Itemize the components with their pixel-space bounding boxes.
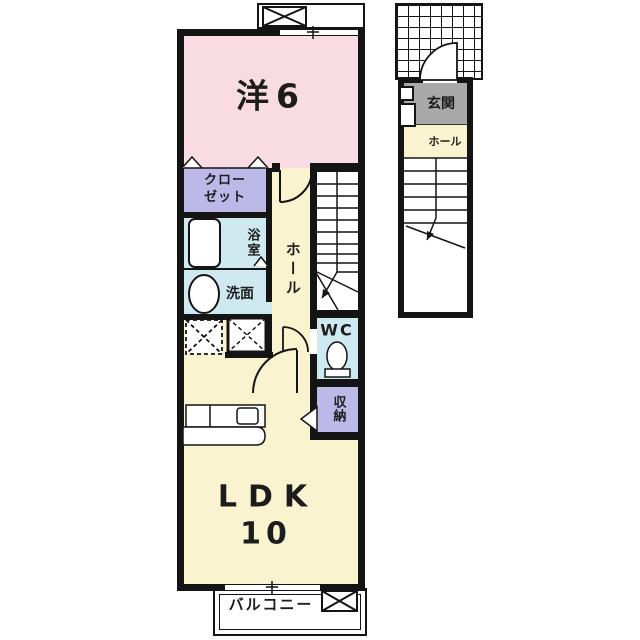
roof-eave-box	[257, 3, 365, 29]
shoe-cabinet-lower	[399, 103, 416, 127]
staircase-entry	[404, 158, 467, 248]
ldk-label: LDK	[218, 478, 318, 517]
wall-kitchen-stub	[177, 427, 218, 434]
entrance-label: 玄関	[427, 95, 455, 113]
wall-stairs-top	[312, 163, 365, 172]
wall-laundry-bottom	[225, 352, 273, 358]
bath-label: 浴室	[243, 228, 260, 258]
balcony-label: バルコニー	[229, 595, 314, 615]
floorplan-canvas: 洋6 クロー ゼット 浴室 洗面 ホール WC 収納 LDK 10 バルコニー …	[0, 0, 640, 640]
wall-hall-left	[266, 168, 272, 314]
entry-porch-hatch	[395, 3, 483, 80]
wc-label: WC	[320, 321, 353, 342]
wall-bath-washroom	[184, 268, 268, 270]
wall-closet-bottom	[184, 212, 272, 218]
hall-label: ホール	[282, 242, 302, 299]
wall-bedroom-door-stub	[272, 163, 280, 172]
wall-washroom-bottom	[184, 314, 272, 320]
staircase-main	[315, 172, 358, 310]
entrance-hall-label: ホール	[429, 135, 462, 149]
shoe-cabinet-upper	[399, 86, 414, 101]
closet-label: クロー ゼット	[204, 173, 246, 207]
storage-label: 収納	[329, 395, 346, 423]
wall-stairs-bottom	[310, 310, 365, 318]
wall-storage-bottom	[310, 432, 365, 440]
window-bottom	[225, 584, 320, 591]
bedroom-label: 洋6	[236, 76, 306, 119]
entry-wall-bottom	[398, 312, 473, 318]
washroom-door-opening	[266, 302, 272, 314]
wc-door-opening	[310, 329, 317, 354]
window-top	[280, 29, 358, 36]
wall-hall-right	[310, 163, 317, 440]
washroom-label: 洗面	[226, 285, 254, 303]
ldk-size-label: 10	[240, 515, 292, 554]
entry-wall-right	[467, 77, 473, 318]
wall-outer-left	[177, 29, 184, 591]
wall-wc-bottom	[310, 379, 365, 387]
